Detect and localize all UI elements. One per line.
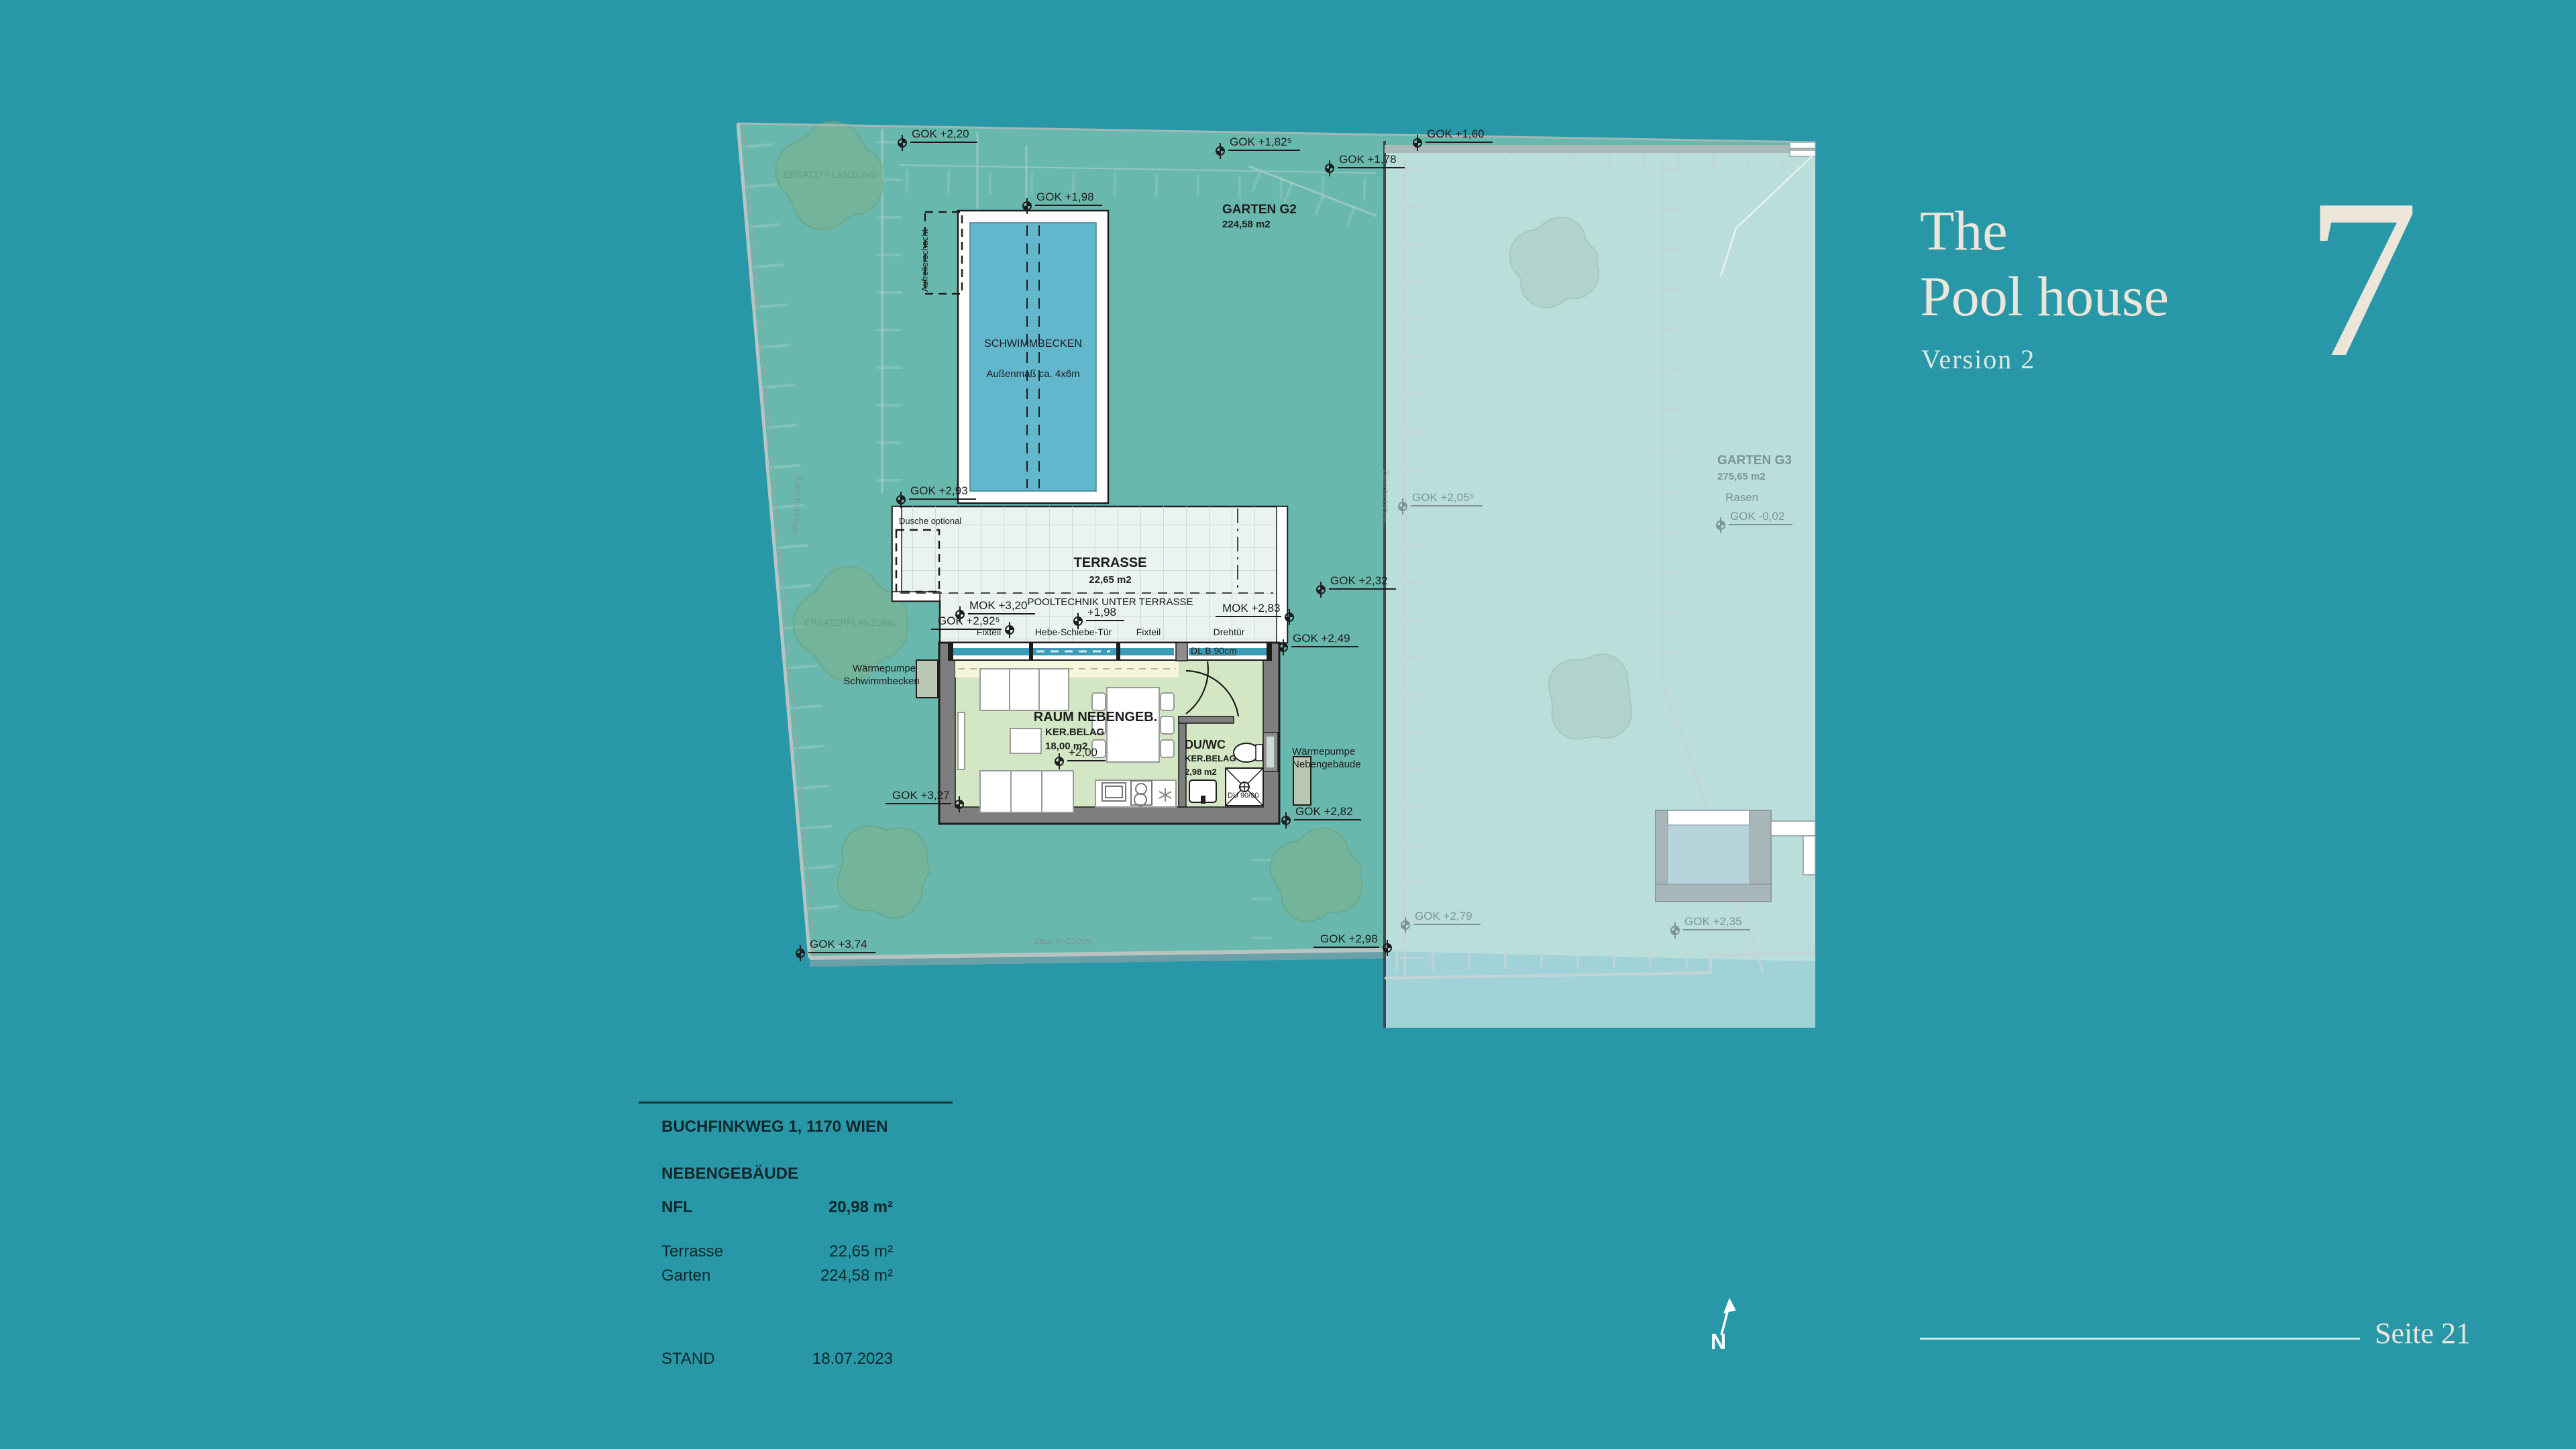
elevation-label: GOK +3,74 (796, 938, 875, 953)
pool-water (970, 223, 1096, 491)
shower-optional-label: Dusche optional (899, 517, 961, 527)
elevation-label: GOK +2,93 (896, 484, 976, 500)
terrace-area: 22,65 m2 (1089, 574, 1131, 586)
title-line1: The (1920, 199, 2169, 264)
elevation-label: GOK +2,35 (1670, 915, 1750, 930)
terrasse-value: 22,65 m² (829, 1242, 893, 1261)
replacement-planting-label: ERSATZPFLANZUNG (804, 617, 898, 628)
elevation-label: GOK +2,32 (1316, 574, 1396, 590)
elevation-label: GOK +1,78 (1325, 153, 1405, 168)
aufroller-label: Aufrollerschacht (920, 229, 930, 292)
elevation-label: GOK +2,92⁵ (931, 614, 1014, 630)
garden-g2-area: 224,58 m2 (1222, 219, 1271, 230)
glazing-segment-label: Hebe-Schiebe-Tür (1035, 627, 1112, 637)
benchmark-icon (1383, 943, 1392, 953)
fence-veil-label: Zaun h=150cm (1379, 470, 1390, 524)
site-plan-svg (0, 0, 2576, 1449)
nfl-label: NFL (661, 1198, 693, 1217)
shower-size-label: DU 90/90 (1228, 792, 1258, 800)
benchmark-icon (1055, 757, 1064, 766)
benchmark-icon (1279, 643, 1288, 652)
info-block: BUCHFINKWEG 1, 1170 WIEN NEBENGEBÄUDE NF… (661, 1118, 893, 1368)
elevation-label: GOK +2,82 (1281, 805, 1361, 820)
benchmark-icon (1005, 625, 1014, 635)
heatpump-annex-line2: Nebengebäude (1292, 759, 1361, 770)
elevation-label: GOK +1,60 (1413, 127, 1493, 143)
title-line2: Pool house (1920, 264, 2169, 330)
elevation-label: GOK +3,27 (885, 789, 964, 804)
benchmark-icon (1281, 816, 1291, 825)
benchmark-icon (1073, 616, 1083, 626)
page-number: Seite 21 (2375, 1316, 2471, 1350)
chapter-number: 7 (2305, 176, 2419, 381)
heatpump-pool-line1: Wärmepumpe (853, 663, 916, 674)
stand-value: 18.07.2023 (812, 1350, 893, 1368)
benchmark-icon (1401, 920, 1410, 930)
address: BUCHFINKWEG 1, 1170 WIEN (661, 1118, 893, 1136)
glazing-segment-label: Fixteil (1136, 627, 1161, 637)
garden-g3-surface: Rasen (1725, 491, 1758, 504)
heatpump-pool-line2: Schwimmbecken (843, 676, 919, 687)
elevation-label: GOK +2,20 (898, 127, 977, 143)
nfl-value: 20,98 m² (828, 1198, 893, 1217)
elevation-label: GOK +2,98 (1313, 932, 1392, 948)
bath-floor: KER.BELAG (1185, 754, 1236, 764)
replacement-planting-label: ERSATZPFLANZUNG (784, 169, 877, 180)
elevation-label: GOK +1,82⁵ (1216, 136, 1300, 151)
benchmark-icon (1716, 521, 1725, 530)
glazing-segment-label: Fixteil (977, 627, 1002, 637)
heatpump-annex-line1: Wärmepumpe (1292, 746, 1355, 757)
benchmark-icon (896, 495, 906, 504)
terrasse-label: Terrasse (661, 1242, 723, 1261)
benchmark-icon (1022, 201, 1032, 211)
building-name: NEBENGEBÄUDE (661, 1165, 893, 1183)
garten-label: Garten (661, 1267, 710, 1285)
heatpump-pool-unit (916, 660, 938, 698)
benchmark-icon (955, 610, 965, 619)
benchmark-icon (1398, 502, 1407, 511)
elevation-label: +1,98 (1073, 606, 1124, 621)
garten-value: 224,58 m² (820, 1267, 893, 1285)
elevation-label: MOK +2,83 (1216, 602, 1294, 617)
fence-bottom-label: Zaun h=150cm (1034, 936, 1092, 947)
page-title: The Pool house (1920, 199, 2169, 331)
benchmark-icon (1216, 146, 1225, 156)
garden-g2-name: GARTEN G2 (1222, 203, 1297, 217)
north-label: N (1711, 1330, 1726, 1354)
benchmark-icon (796, 949, 805, 958)
pool-label: SCHWIMMBECKEN (984, 338, 1082, 350)
glazing-segment-label: Drehtür (1214, 627, 1245, 637)
elevation-label: GOK -0,02 (1716, 510, 1792, 525)
door-label: DL B 90cm (1191, 645, 1237, 656)
elevation-label: GOK +2,05⁵ (1398, 491, 1483, 506)
info-rule (639, 1102, 953, 1104)
pool-dimension: Außenmaß ca. 4x6m (986, 368, 1079, 380)
elevation-label: GOK +1,98 (1022, 191, 1102, 206)
page: GARTEN G2 224,58 m2 GARTEN G3 275,65 m2 … (0, 0, 2576, 1449)
elevation-label: GOK +2,79 (1401, 910, 1481, 925)
room-label: RAUM NEBENGEB. (1034, 710, 1157, 725)
elevation-label: MOK +3,20 (955, 599, 1035, 614)
room-floor: KER.BELAG (1045, 727, 1104, 738)
benchmark-icon (955, 800, 964, 809)
stand-label: STAND (661, 1350, 715, 1368)
bath-area: 2,98 m2 (1185, 767, 1217, 777)
benchmark-icon (1316, 585, 1326, 594)
footer-rule (1920, 1338, 2360, 1340)
terrace-label: TERRASSE (1074, 555, 1147, 571)
benchmark-icon (1670, 926, 1680, 935)
benchmark-icon (898, 138, 907, 148)
elevation-label: GOK +2,49 (1279, 632, 1358, 647)
garden-g3-area: 275,65 m2 (1717, 471, 1766, 482)
benchmark-icon (1325, 164, 1334, 173)
elevation-label: +2,00 (1055, 746, 1106, 761)
bath-label: DU/WC (1185, 738, 1226, 752)
benchmark-icon (1413, 138, 1422, 148)
garden-g3-name: GARTEN G3 (1717, 453, 1792, 468)
title-subtitle: Version 2 (1921, 343, 2035, 375)
